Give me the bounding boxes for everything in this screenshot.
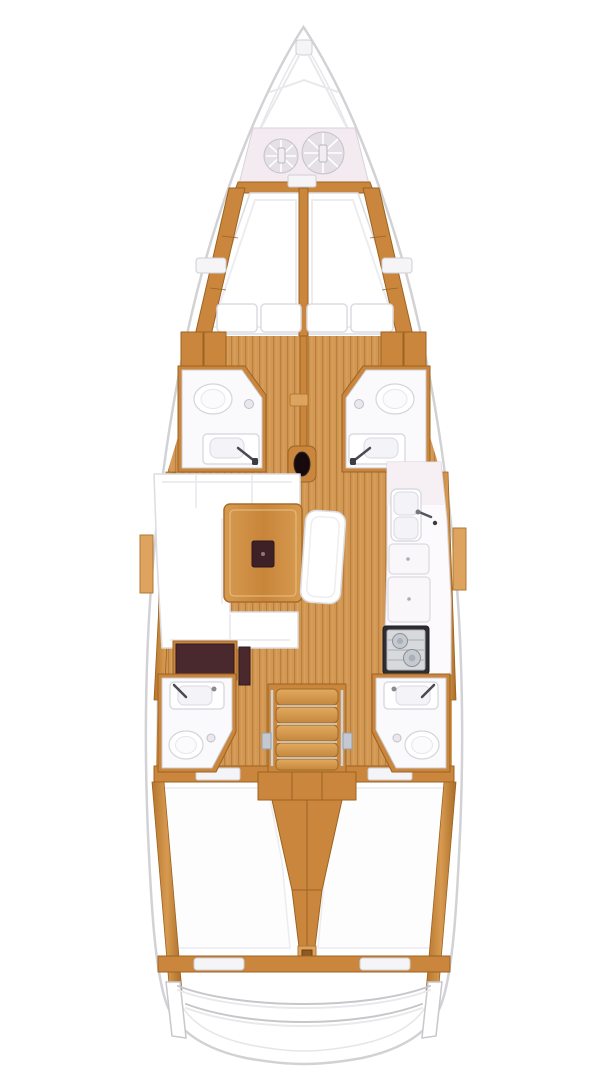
pillow-3	[307, 304, 347, 332]
step-4	[276, 743, 338, 757]
door-stop-nub	[290, 394, 308, 406]
lid-1-handle	[406, 557, 410, 561]
side-locker-starboard	[453, 528, 466, 590]
toilet	[376, 384, 414, 414]
shower-drain-icon	[245, 400, 254, 409]
tap-knob	[212, 687, 217, 692]
step-5	[276, 759, 338, 770]
step-1	[276, 689, 338, 705]
galley	[383, 462, 451, 674]
transom-step-port	[194, 958, 244, 970]
side-deck-hatch-port	[196, 258, 226, 273]
pillow-1	[217, 304, 257, 332]
boat-floor-plan	[0, 0, 608, 1080]
forward-cabin	[194, 188, 414, 340]
side-locker-port	[140, 535, 153, 593]
tap-knob	[392, 687, 397, 692]
table-inset-latch	[261, 552, 265, 556]
washbasin	[170, 682, 224, 709]
two-burner-stove	[383, 626, 429, 674]
forestay-fitting	[296, 40, 312, 55]
toilet	[194, 384, 232, 414]
step-3	[276, 725, 338, 741]
toilet	[169, 731, 203, 759]
center-partition-wall	[300, 336, 307, 448]
washbasin	[349, 434, 405, 465]
washbasin	[203, 434, 259, 465]
toilet	[405, 731, 439, 759]
lid-2-handle	[407, 597, 411, 601]
locker-port-b	[204, 332, 226, 370]
locker-port-a	[181, 332, 203, 368]
locker-stbd-b	[404, 332, 426, 368]
shower-drain-icon	[207, 734, 215, 742]
step-2	[276, 707, 338, 723]
rope-coil-starboard	[302, 132, 344, 174]
side-deck-hatch-starboard	[382, 258, 412, 273]
handrail-bracket-right	[343, 733, 352, 749]
pillow-2	[261, 304, 301, 332]
chart-desk-strip	[239, 647, 250, 685]
shower-drain-icon	[393, 734, 401, 742]
washbasin	[384, 682, 438, 709]
galley-knob	[433, 521, 437, 525]
transom-step-starboard	[360, 958, 410, 970]
bow-hatch-latch	[288, 175, 316, 187]
tap-base	[416, 510, 421, 515]
tap-knob	[252, 458, 258, 465]
handrail-bracket-left	[262, 733, 271, 749]
shower-drain-icon	[355, 400, 364, 409]
island-bench	[300, 510, 346, 605]
locker-stbd-a	[381, 332, 403, 370]
pillow-4	[351, 304, 393, 332]
aft-berth-port	[164, 788, 290, 948]
engine-compartment	[258, 772, 356, 800]
rope-coil-port	[264, 139, 298, 173]
tap-knob	[350, 458, 356, 465]
dining-table	[224, 504, 302, 602]
chart-desk-top	[176, 644, 234, 677]
